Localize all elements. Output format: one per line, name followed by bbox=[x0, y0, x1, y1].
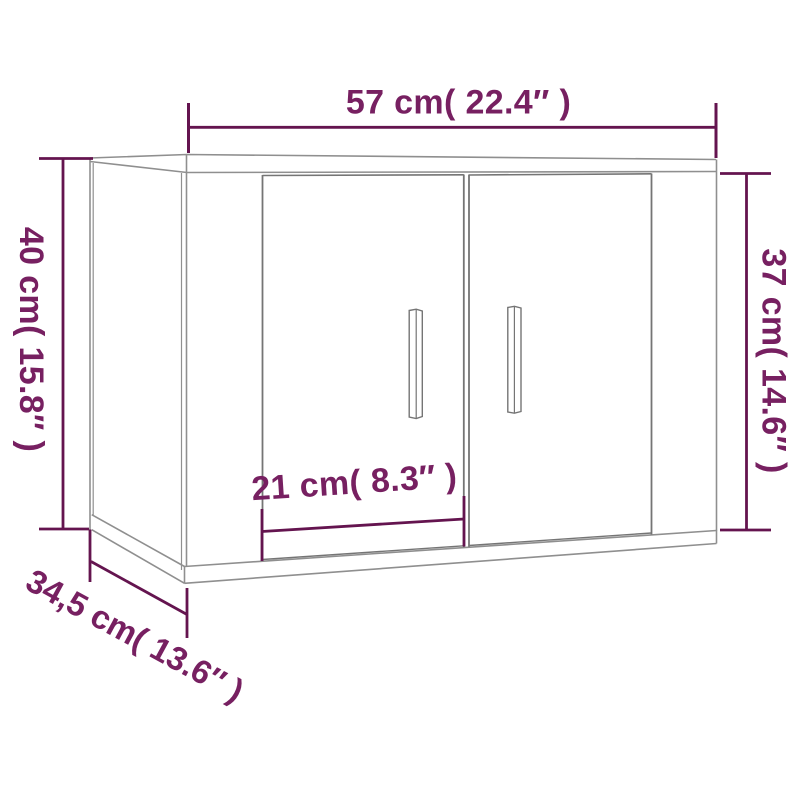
svg-text:37 cm( 14.6″ ): 37 cm( 14.6″ ) bbox=[755, 248, 793, 473]
svg-text:57 cm( 22.4″ ): 57 cm( 22.4″ ) bbox=[346, 84, 571, 122]
svg-text:40 cm( 15.8″ ): 40 cm( 15.8″ ) bbox=[12, 227, 50, 452]
